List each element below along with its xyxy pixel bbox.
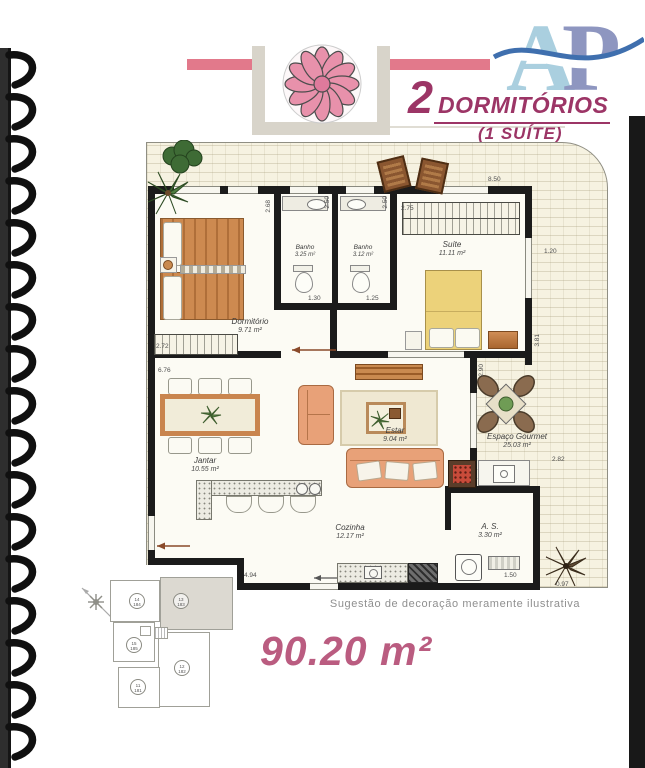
room-label-as: A. S.3.30 m² [462,522,518,540]
decor-item [389,408,401,419]
double-bed [425,270,482,350]
dim-label: 2.72 [156,343,169,350]
room-label-cozinha: Cozinha12.17 m² [318,523,382,541]
room-label-estar: Estar9.04 m² [365,426,425,444]
nightstand [405,331,422,350]
sink-icon [296,483,308,495]
laundry-sink [488,556,520,570]
stove-icon [408,563,438,583]
window [346,186,374,194]
dining-chair [228,437,252,454]
total-area: 90.20 m² [260,628,432,675]
unit-number-badge: 13183 [173,593,189,609]
service-door-opening [310,583,338,590]
dim-label: 6.76 [158,367,171,374]
dim-label: 2.82 [552,456,565,463]
dim-label: 1.20 [544,248,557,255]
nightstand [160,257,177,273]
keyplan-unit-highlighted [160,577,233,630]
floor-plan: Dormitório9.71 m² Banho3.25 m² Banho3.12… [140,138,612,596]
window [290,186,318,194]
glass-door [525,238,532,298]
keyplan: 14184 13183 15185 12182 11181 [70,568,240,743]
keyplan-core [154,627,168,639]
dim-label: 1.25 [366,295,379,302]
room-label-dormitorio: Dormitório9.71 m² [215,317,285,335]
sink-icon [347,199,366,210]
room-label-gourmet: Espaço Gourmet25.03 m² [478,432,556,450]
bath-counter [282,196,328,211]
dining-chair [168,437,192,454]
dim-label: 3.81 [534,334,541,347]
palm-plant-icon [146,168,190,218]
dining-chair [228,378,252,395]
unit-number-badge: 11181 [130,679,146,695]
title-text: DORMITÓRIOS [434,92,610,124]
plan-title: 2 DORMITÓRIOS [408,72,610,124]
window [388,351,464,358]
washing-machine-icon [455,554,482,581]
dim-label: 2.90 [478,364,485,377]
decorative-bar-left [187,59,253,70]
toilet-icon [295,272,313,293]
sink-icon [309,483,321,495]
centerpiece-plant-icon [199,403,223,427]
suite-bench [488,331,518,349]
room-label-banho1: Banho3.25 m² [280,244,330,259]
tv-rack [355,364,423,380]
grill-icon [448,460,476,488]
toilet-tank [293,265,313,272]
caption: Sugestão de decoração meramente ilustrat… [305,598,605,610]
title-number: 2 [408,72,434,124]
dining-chair [198,378,222,395]
armchair [298,385,334,445]
room-label-jantar: Jantar10.55 m² [175,456,235,474]
keyplan-core [140,626,151,636]
dim-label: 1.30 [308,295,321,302]
dim-label: 4.94 [244,572,257,579]
dining-table [160,394,260,436]
room-label-banho2: Banho3.12 m² [338,244,388,259]
dim-label: 2.68 [265,200,272,213]
unit-number-badge: 12182 [174,660,190,676]
gourmet-counter [478,460,530,486]
dim-label: 2.75 [401,205,414,212]
entry-arrow [152,540,192,552]
dim-label: 8.50 [488,176,501,183]
flower-icon [280,42,364,126]
sink-icon [364,566,382,579]
unit-number-badge: 15185 [126,637,142,653]
window [440,186,488,194]
sofa [346,448,444,488]
suite-closet [402,202,520,235]
dim-label: 2.50 [324,196,331,209]
gourmet-table [475,373,537,435]
unit-number-badge: 14184 [129,593,145,609]
toilet-tank [350,265,370,272]
decorative-bar-right [389,59,490,70]
spiral-binding [0,40,46,768]
kitchen-counter [196,480,212,520]
sink-icon [493,465,515,483]
toilet-icon [352,272,370,293]
page-edge-shadow [629,116,645,768]
dining-chair [198,437,222,454]
dim-label: 2.50 [382,196,389,209]
bath-counter [340,196,386,211]
dim-label: 0.97 [556,581,569,588]
single-bed [160,272,244,320]
door-arrow [284,344,338,356]
dim-label: 1.50 [504,572,517,579]
window [228,186,258,194]
dining-chair [168,378,192,395]
room-label-suite: Suíte11.11 m² [417,240,487,258]
bed-runner [180,265,246,274]
